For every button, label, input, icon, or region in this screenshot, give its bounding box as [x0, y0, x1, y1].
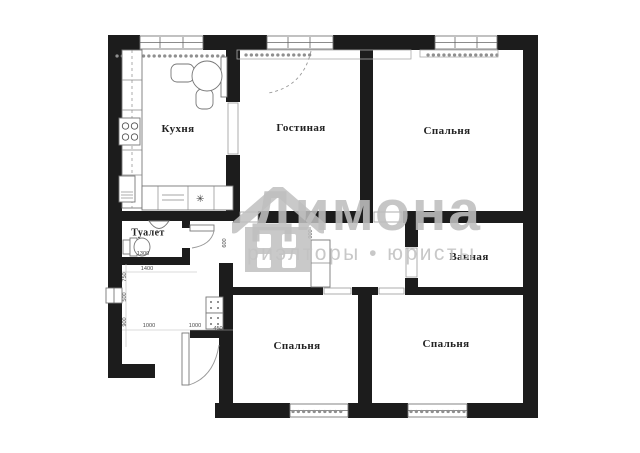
room-label-bedroom-bottom-right: Спальня	[423, 338, 470, 350]
entrance-door-icon	[182, 333, 219, 385]
floorplan-drawing: ✳	[0, 0, 640, 453]
dim-1300: 1300	[137, 250, 149, 256]
bathroom-door	[406, 248, 417, 277]
bedroom-bottom-center-door	[324, 288, 351, 294]
stove-icon	[119, 118, 140, 145]
bedroom-top-right-door	[374, 212, 402, 222]
dim-500: 500	[121, 292, 127, 301]
room-label-living-room: Гостиная	[276, 122, 325, 134]
dim-900-corridor: 900	[307, 229, 313, 238]
dim-1000-b: 1000	[189, 322, 201, 328]
room-label-kitchen: Кухня	[162, 123, 195, 135]
floorplan-image: ✳	[0, 0, 640, 453]
hallway-window	[106, 288, 122, 303]
room-label-bathroom: Ванная	[449, 251, 488, 263]
walls	[108, 35, 538, 418]
living-room-balcony-window	[267, 36, 333, 49]
room-label-bedroom-top-right: Спальня	[424, 125, 471, 137]
bedroom-top-right-window	[435, 36, 497, 49]
dim-450: 450	[213, 325, 222, 331]
dim-1000-a: 1000	[143, 322, 155, 328]
dim-750: 750	[121, 272, 127, 281]
dim-1400: 1400	[141, 265, 153, 271]
living-room-door	[240, 212, 258, 222]
toilet-door-icon	[190, 225, 214, 248]
dining-table-icon	[171, 61, 222, 109]
corridor-closet-icon	[311, 240, 330, 287]
dim-600: 600	[221, 238, 227, 247]
room-label-toilet: Туалет	[131, 228, 165, 239]
kitchen-window	[140, 36, 203, 49]
dim-900-left: 900	[121, 317, 127, 326]
exhaust-fan-icon: ✳	[196, 194, 204, 205]
kitchen-door	[228, 103, 238, 154]
svg-text:✳: ✳	[196, 194, 204, 205]
balcony-door-arc-icon	[268, 51, 311, 93]
fridge-icon	[119, 176, 135, 202]
bedroom-bottom-right-door	[379, 288, 404, 294]
room-label-bedroom-bottom-center: Спальня	[274, 340, 321, 352]
